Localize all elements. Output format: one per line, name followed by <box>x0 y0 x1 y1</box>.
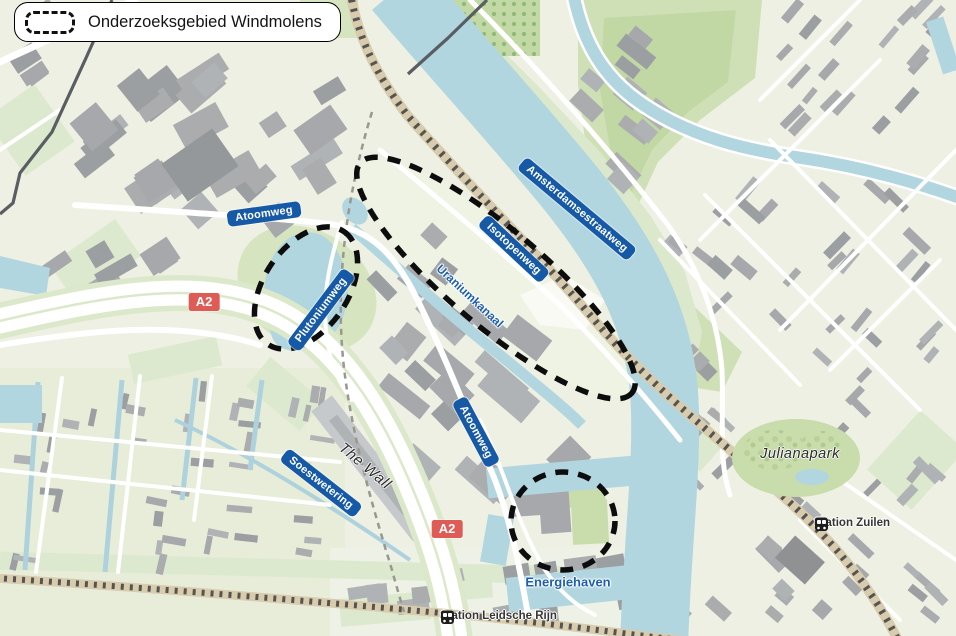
highway-label-a2-north: A2 <box>189 293 220 311</box>
place-label-julianapark: Julianapark <box>760 446 840 462</box>
research-area-legend-icon <box>25 11 75 34</box>
station-zuilen: Station Zuilen <box>814 517 890 529</box>
legend-title: Onderzoeksgebied Windmolens <box>88 13 322 32</box>
highway-label-a2-south: A2 <box>432 520 463 538</box>
station-leidsche-rijn: Station Leidsche Rijn <box>440 610 557 622</box>
train-icon <box>440 610 455 627</box>
map-viewport: Onderzoeksgebied Windmolens Atoomweg Plu… <box>0 0 956 636</box>
map-canvas <box>0 0 956 636</box>
station-leidsche-rijn-label: Station Leidsche Rijn <box>440 610 557 622</box>
water-label-energiehaven: Energiehaven <box>525 575 610 590</box>
legend: Onderzoeksgebied Windmolens <box>14 2 341 42</box>
train-icon <box>814 517 829 534</box>
